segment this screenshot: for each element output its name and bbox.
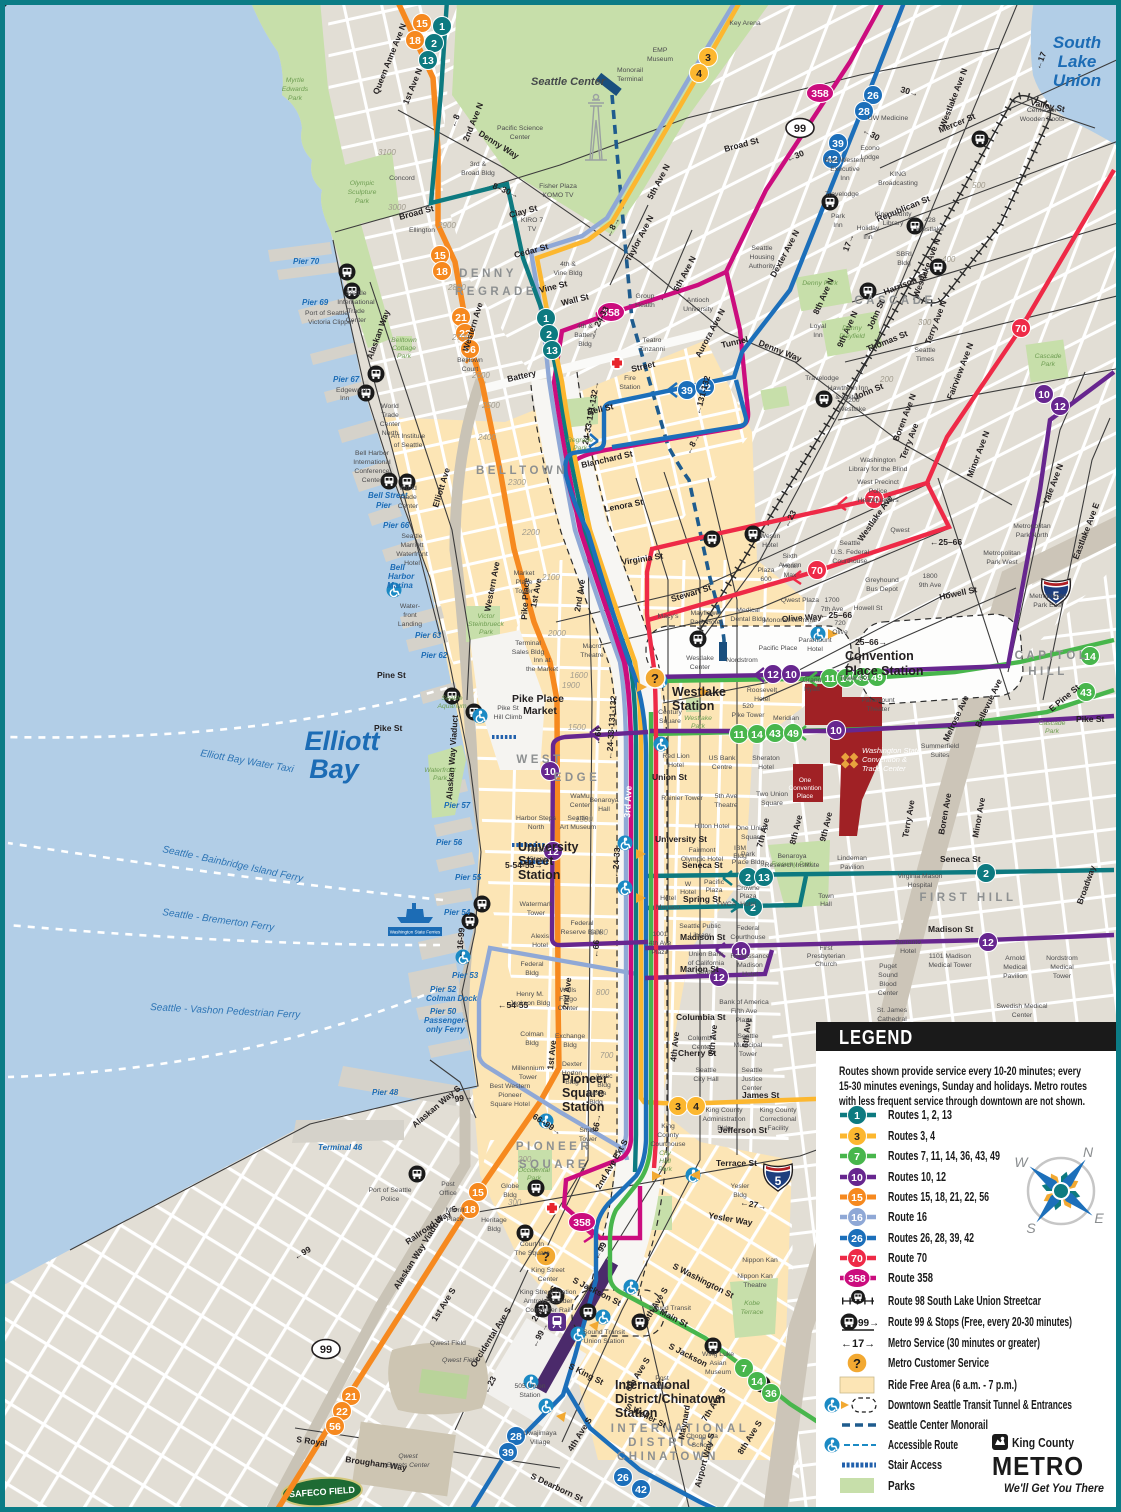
svg-text:Tower: Tower	[515, 588, 534, 595]
svg-text:Routes 10, 12: Routes 10, 12	[888, 1170, 946, 1184]
svg-text:Bldg: Bldg	[897, 260, 911, 267]
svg-text:Meridian: Meridian	[773, 715, 799, 722]
svg-text:Benaroya: Benaroya	[589, 797, 618, 804]
svg-text:←17→: ←17→	[841, 1338, 875, 1350]
svg-text:Best Western: Best Western	[825, 157, 866, 164]
svg-text:Route 70: Route 70	[888, 1251, 927, 1265]
svg-text:358: 358	[811, 88, 829, 100]
svg-text:Nordstrom: Nordstrom	[726, 657, 758, 664]
svg-text:Theatre: Theatre	[580, 652, 604, 659]
svg-text:Harbor: Harbor	[528, 847, 550, 854]
svg-text:Tower: Tower	[1053, 973, 1072, 980]
svg-text:Occidental: Occidental	[518, 1167, 551, 1174]
svg-text:720: 720	[834, 620, 846, 627]
svg-text:Routes 15, 18, 21, 22, 56: Routes 15, 18, 21, 22, 56	[888, 1190, 989, 1204]
svg-text:2: 2	[546, 329, 552, 341]
svg-text:Park North: Park North	[1016, 532, 1049, 539]
svg-text:Library: Library	[690, 932, 711, 939]
svg-text:South: South	[1053, 33, 1101, 52]
svg-text:16: 16	[851, 1212, 863, 1224]
svg-text:Courthouse: Courthouse	[832, 558, 867, 565]
svg-text:2500: 2500	[481, 401, 500, 410]
svg-text:Market: Market	[523, 705, 557, 717]
svg-text:1600: 1600	[570, 671, 588, 680]
svg-text:Pier 66: Pier 66	[383, 521, 410, 530]
svg-text:Metropolitan: Metropolitan	[983, 550, 1021, 557]
svg-text:S: S	[1026, 1220, 1036, 1236]
svg-text:Police: Police	[381, 1196, 400, 1203]
svg-text:County: County	[657, 1132, 679, 1139]
svg-text:3: 3	[675, 1101, 681, 1113]
svg-text:Seattle: Seattle	[345, 290, 366, 297]
svg-text:Park: Park	[831, 213, 846, 220]
svg-text:Hall: Hall	[598, 806, 610, 813]
svg-text:Seattle: Seattle	[441, 695, 462, 702]
svg-text:Amtrak/Sounder: Amtrak/Sounder	[523, 1298, 573, 1305]
svg-text:2400: 2400	[477, 433, 496, 442]
svg-text:Hotel: Hotel	[762, 542, 778, 549]
svg-text:Madison St: Madison St	[928, 924, 974, 934]
svg-text:Station: Station	[519, 1392, 540, 1399]
svg-text:Group: Group	[636, 293, 655, 300]
svg-text:Fargo: Fargo	[559, 996, 577, 1003]
svg-text:Park: Park	[691, 723, 706, 730]
svg-text:Rainier Tower: Rainier Tower	[661, 795, 703, 802]
svg-text:CASCADE: CASCADE	[854, 295, 935, 307]
svg-text:Federal: Federal	[736, 925, 760, 932]
svg-text:Seattle: Seattle	[741, 1067, 762, 1074]
svg-text:1: 1	[543, 313, 549, 325]
svg-text:Marriott: Marriott	[400, 542, 423, 549]
svg-text:14: 14	[751, 1376, 763, 1388]
svg-text:CAPITOL: CAPITOL	[1015, 650, 1090, 662]
svg-text:3: 3	[854, 1131, 860, 1143]
svg-text:70: 70	[851, 1253, 863, 1265]
svg-text:Authority: Authority	[749, 263, 776, 270]
svg-text:Sheraton: Sheraton	[752, 755, 780, 762]
svg-text:Cathedral: Cathedral	[877, 1016, 907, 1023]
svg-text:Inn: Inn	[340, 395, 350, 402]
svg-text:Exchange: Exchange	[555, 1033, 585, 1040]
svg-text:Square: Square	[761, 800, 783, 807]
svg-text:500: 500	[972, 181, 986, 190]
svg-text:Paramount: Paramount	[798, 637, 831, 644]
svg-text:Terrace St: Terrace St	[716, 1158, 757, 1168]
svg-text:Route 98 South Lake Union Stre: Route 98 South Lake Union Streetcar	[888, 1294, 1041, 1308]
svg-text:Port of Seattle: Port of Seattle	[368, 1187, 411, 1194]
svg-text:13: 13	[758, 872, 770, 884]
svg-text:HILL: HILL	[1028, 666, 1068, 678]
svg-text:Wooden Boots: Wooden Boots	[1020, 116, 1065, 123]
svg-text:Market: Market	[514, 570, 535, 577]
svg-text:26: 26	[851, 1233, 863, 1245]
svg-text:Bank of America: Bank of America	[719, 999, 769, 1006]
svg-text:Benaroya: Benaroya	[777, 853, 806, 860]
svg-text:Horton: Horton	[562, 1070, 583, 1077]
svg-text:Pioneer: Pioneer	[498, 1092, 522, 1099]
svg-text:Courthouse: Courthouse	[650, 1141, 685, 1148]
svg-text:15: 15	[472, 1187, 484, 1199]
svg-text:1800: 1800	[922, 573, 937, 580]
svg-text:18: 18	[464, 1204, 476, 1216]
svg-text:Convention: Convention	[845, 649, 914, 663]
svg-text:Courthouse: Courthouse	[730, 934, 765, 941]
svg-text:Millennium: Millennium	[512, 1065, 545, 1072]
svg-text:front: front	[403, 612, 417, 619]
svg-text:7: 7	[741, 1363, 747, 1375]
svg-text:Post: Post	[441, 1181, 455, 1188]
svg-text:International: International	[353, 459, 391, 466]
svg-text:Henry M.: Henry M.	[516, 991, 544, 998]
svg-text:Sculpture: Sculpture	[348, 189, 377, 196]
svg-text:Research Institute: Research Institute	[765, 862, 820, 869]
svg-text:TV: TV	[528, 226, 537, 233]
svg-text:9th Ave: 9th Ave	[919, 582, 942, 589]
svg-text:15-30 minutes evenings, Sunday: 15-30 minutes evenings, Sunday and holid…	[839, 1079, 1087, 1093]
svg-text:Wing Luke: Wing Luke	[702, 1351, 734, 1358]
svg-text:Columbia St: Columbia St	[676, 1012, 726, 1022]
svg-text:Broad Bldg: Broad Bldg	[461, 170, 495, 177]
svg-text:Aquarium: Aquarium	[436, 703, 466, 710]
svg-text:Park: Park	[573, 445, 588, 452]
svg-text:Housing: Housing	[750, 254, 775, 261]
svg-text:Police: Police	[869, 488, 888, 495]
svg-text:600: 600	[760, 576, 772, 583]
svg-text:SBRI: SBRI	[896, 251, 912, 258]
svg-text:Key Arena: Key Arena	[729, 20, 761, 27]
svg-text:Hotel: Hotel	[900, 948, 916, 955]
svg-text:Park East: Park East	[1033, 602, 1063, 609]
svg-text:Theatre: Theatre	[714, 802, 738, 809]
svg-text:Park: Park	[527, 1175, 542, 1182]
svg-text:Bldg: Bldg	[525, 1040, 539, 1047]
svg-text:Crowne: Crowne	[736, 885, 760, 892]
svg-text:Olympic: Olympic	[350, 180, 375, 187]
svg-text:1: 1	[439, 21, 445, 33]
svg-text:4: 4	[693, 1101, 699, 1113]
svg-text:Center: Center	[690, 664, 711, 671]
svg-text:Medical: Medical	[736, 607, 760, 614]
svg-text:Office: Office	[439, 1190, 457, 1197]
svg-text:1900: 1900	[562, 681, 580, 690]
svg-text:2: 2	[983, 868, 989, 880]
svg-text:Sound Transit: Sound Transit	[583, 1329, 625, 1336]
svg-text:Asian: Asian	[709, 1360, 726, 1367]
svg-text:18: 18	[436, 266, 448, 278]
svg-text:Sixth: Sixth	[782, 553, 797, 560]
svg-text:1001: 1001	[652, 931, 667, 938]
svg-text:Broadcasting: Broadcasting	[878, 180, 918, 187]
svg-text:Olympic Hotel: Olympic Hotel	[681, 856, 724, 863]
svg-text:Dental Bldg: Dental Bldg	[730, 616, 765, 623]
svg-text:Seattle: Seattle	[839, 540, 860, 547]
svg-text:Arctic: Arctic	[596, 1073, 614, 1080]
svg-text:Inn: Inn	[833, 222, 843, 229]
svg-text:Bus Depot: Bus Depot	[866, 586, 898, 593]
svg-text:Edgewater: Edgewater	[336, 387, 369, 394]
svg-text:2800: 2800	[447, 283, 466, 292]
svg-text:METRO: METRO	[992, 1451, 1084, 1481]
svg-text:Park: Park	[397, 353, 412, 360]
svg-text:358: 358	[848, 1273, 866, 1285]
svg-text:Terminal: Terminal	[515, 640, 541, 647]
svg-text:Medical: Medical	[1050, 964, 1074, 971]
svg-text:Bldg: Bldg	[578, 341, 592, 348]
svg-text:US Bank: US Bank	[709, 755, 736, 762]
svg-text:Nippon Kan: Nippon Kan	[742, 1257, 778, 1264]
svg-text:2000: 2000	[547, 629, 566, 638]
svg-text:Olive: Olive	[832, 629, 848, 636]
svg-text:Terminal 46: Terminal 46	[318, 1143, 363, 1152]
svg-text:First: First	[819, 945, 832, 952]
svg-text:Vine Bldg: Vine Bldg	[554, 270, 583, 277]
svg-text:Edwards: Edwards	[282, 86, 309, 93]
svg-text:26: 26	[617, 1472, 629, 1484]
svg-text:Square: Square	[741, 834, 763, 841]
svg-text:Sorrento: Sorrento	[895, 939, 921, 946]
svg-text:Chong Wa: Chong Wa	[686, 1433, 718, 1440]
svg-text:U.S. Federal: U.S. Federal	[831, 549, 870, 556]
svg-text:LEGEND: LEGEND	[839, 1027, 913, 1049]
svg-text:Hilton Hotel: Hilton Hotel	[694, 823, 730, 830]
svg-text:Hyatt: Hyatt	[804, 686, 820, 693]
svg-text:Pier 62: Pier 62	[421, 651, 448, 660]
svg-text:Pike Place: Pike Place	[512, 693, 564, 705]
svg-text:520: 520	[742, 703, 754, 710]
svg-text:Nippon Kan: Nippon Kan	[737, 1273, 773, 1280]
svg-text:Federal: Federal	[570, 920, 594, 927]
svg-text:Plaza: Plaza	[651, 949, 668, 956]
svg-text:Colman Dock: Colman Dock	[426, 994, 478, 1003]
svg-text:Seattle: Seattle	[914, 347, 935, 354]
svg-text:200: 200	[879, 375, 894, 384]
svg-text:King County: King County	[874, 211, 912, 218]
svg-text:Columbia: Columbia	[688, 1035, 717, 1042]
svg-text:N: N	[1083, 1144, 1094, 1160]
svg-text:Library for the Blind: Library for the Blind	[849, 466, 908, 473]
svg-text:Metro Service (30 minutes or g: Metro Service (30 minutes or greater)	[888, 1336, 1040, 1350]
svg-text:Summerfield: Summerfield	[921, 743, 959, 750]
svg-text:KOMO TV: KOMO TV	[542, 192, 574, 199]
svg-text:2100: 2100	[541, 573, 560, 582]
svg-text:5: 5	[775, 1174, 782, 1188]
svg-text:Bldg: Bldg	[487, 1226, 501, 1233]
svg-text:Roosevelt: Roosevelt	[747, 687, 777, 694]
svg-text:Econo: Econo	[860, 145, 879, 152]
svg-text:Routes 3, 4: Routes 3, 4	[888, 1129, 935, 1143]
svg-text:Fifth Ave: Fifth Ave	[731, 1008, 758, 1015]
svg-text:W: W	[1014, 1154, 1029, 1170]
svg-text:Fire: Fire	[624, 375, 636, 382]
svg-text:Park: Park	[288, 95, 303, 102]
svg-text:Marina: Marina	[387, 581, 413, 590]
svg-text:Court: Court	[462, 366, 479, 373]
svg-text:39: 39	[502, 1447, 514, 1459]
svg-text:Pavilion: Pavilion	[1003, 973, 1027, 980]
svg-text:Arnold: Arnold	[1005, 955, 1025, 962]
svg-text:Paramount: Paramount	[861, 697, 894, 704]
svg-text:Center: Center	[346, 317, 367, 324]
svg-text:Court In: Court In	[520, 1241, 544, 1248]
svg-text:Tower: Tower	[579, 1136, 598, 1143]
svg-text:Pike St: Pike St	[1076, 714, 1105, 724]
svg-text:Administration: Administration	[702, 1116, 745, 1123]
svg-text:Plaza: Plaza	[757, 567, 774, 574]
svg-text:Medical: Medical	[1003, 964, 1027, 971]
svg-text:Center: Center	[1012, 1012, 1033, 1019]
svg-text:Route 358: Route 358	[888, 1271, 933, 1285]
svg-text:43: 43	[1080, 687, 1092, 699]
svg-text:400: 400	[942, 255, 956, 264]
svg-text:Westlake: Westlake	[838, 406, 866, 413]
svg-text:300: 300	[918, 318, 932, 327]
svg-text:Ride Free Area (6 a.m. - 7 p.m: Ride Free Area (6 a.m. - 7 p.m.)	[888, 1378, 1017, 1392]
svg-text:Pier 56: Pier 56	[436, 838, 463, 847]
svg-text:Myrtle: Myrtle	[286, 77, 305, 84]
svg-text:?: ?	[651, 671, 659, 686]
svg-text:Square: Square	[659, 718, 681, 725]
svg-text:Fairmont: Fairmont	[689, 847, 716, 854]
svg-text:Union Bank: Union Bank	[688, 951, 724, 958]
svg-text:One Union: One Union	[736, 825, 769, 832]
svg-text:Seattle Public: Seattle Public	[679, 923, 721, 930]
svg-text:13: 13	[422, 55, 434, 67]
svg-text:Seattle: Seattle	[751, 245, 772, 252]
svg-text:Bldg: Bldg	[733, 1192, 747, 1199]
svg-text:Bay: Bay	[309, 754, 361, 784]
svg-text:Seattle: Seattle	[737, 1033, 758, 1040]
svg-text:15: 15	[416, 18, 428, 30]
svg-text:Pier 63: Pier 63	[415, 631, 442, 640]
svg-text:World: World	[399, 485, 417, 492]
svg-text:2700: 2700	[451, 333, 470, 342]
svg-text:Medical Tower: Medical Tower	[928, 962, 972, 969]
svg-text:Renaissance: Renaissance	[730, 953, 770, 960]
svg-text:Trade: Trade	[399, 494, 417, 501]
svg-text:Park: Park	[433, 775, 448, 782]
svg-text:DENNY: DENNY	[459, 268, 517, 280]
svg-text:Water-: Water-	[400, 603, 420, 610]
svg-text:Bldg: Bldg	[717, 1125, 731, 1132]
svg-text:University St: University St	[655, 834, 707, 844]
svg-text:only Ferry: only Ferry	[426, 1025, 465, 1034]
svg-text:Smith: Smith	[579, 1127, 597, 1134]
svg-text:Howell St: Howell St	[854, 605, 883, 612]
svg-text:Yesler: Yesler	[731, 1183, 750, 1190]
svg-text:99: 99	[320, 1344, 332, 1356]
svg-text:?: ?	[853, 1356, 861, 1371]
svg-text:Tower: Tower	[527, 910, 546, 917]
svg-text:North: North	[528, 824, 545, 831]
svg-text:Grand: Grand	[803, 677, 822, 684]
svg-text:Route 99 & Stops (Free, every: Route 99 & Stops (Free, every 20-30 minu…	[888, 1315, 1072, 1329]
svg-text:Seattle: Seattle	[401, 533, 422, 540]
svg-text:Regrade: Regrade	[567, 437, 593, 444]
svg-text:Pavilion: Pavilion	[840, 864, 864, 871]
svg-text:Place: Place	[515, 579, 532, 586]
svg-text:Accessible Route: Accessible Route	[888, 1438, 958, 1452]
svg-text:Pacific: Pacific	[704, 879, 725, 886]
svg-text:Westlake: Westlake	[684, 715, 712, 722]
svg-text:Ellington: Ellington	[409, 227, 435, 234]
svg-text:Loyal: Loyal	[810, 323, 827, 330]
svg-text:Jackson Bldg: Jackson Bldg	[510, 1000, 551, 1007]
svg-text:Terminal: Terminal	[617, 76, 643, 83]
svg-text:Alaska: Alaska	[586, 1090, 607, 1097]
svg-text:Colman: Colman	[520, 1031, 544, 1038]
svg-text:300: 300	[508, 1198, 522, 1207]
svg-text:10: 10	[1038, 389, 1050, 401]
svg-text:Inn: Inn	[813, 332, 823, 339]
svg-text:Conference: Conference	[354, 468, 389, 475]
svg-text:Port of Seattle: Port of Seattle	[305, 310, 348, 317]
svg-text:Route 16: Route 16	[888, 1210, 927, 1224]
svg-text:Place Bldg: Place Bldg	[732, 859, 765, 866]
svg-text:Center: Center	[380, 421, 401, 428]
svg-text:Waterfront: Waterfront	[396, 551, 428, 558]
svg-text:KING: KING	[890, 171, 907, 178]
svg-text:←66: ←66	[592, 726, 603, 745]
svg-text:Routes 7, 11, 14, 36, 43, 49: Routes 7, 11, 14, 36, 43, 49	[888, 1149, 1000, 1163]
svg-text:4: 4	[696, 68, 702, 80]
svg-text:Pacific Place: Pacific Place	[759, 645, 798, 652]
svg-text:43: 43	[769, 728, 781, 740]
svg-text:70: 70	[811, 565, 823, 577]
svg-text:1101 Madison: 1101 Madison	[929, 953, 971, 960]
svg-text:Center: Center	[692, 1044, 713, 1051]
svg-text:14: 14	[751, 729, 763, 741]
svg-text:Routes 1, 2, 13: Routes 1, 2, 13	[888, 1108, 952, 1122]
svg-text:Center for: Center for	[1027, 107, 1058, 114]
svg-text:Hotel: Hotel	[740, 901, 756, 908]
svg-text:Seneca St: Seneca St	[940, 854, 981, 864]
svg-text:Mayflower: Mayflower	[691, 610, 723, 617]
svg-text:Denny Park: Denny Park	[802, 280, 838, 287]
svg-text:15: 15	[851, 1192, 863, 1204]
svg-text:Pike St: Pike St	[374, 723, 403, 733]
svg-text:Virginia Mason: Virginia Mason	[898, 873, 943, 880]
svg-text:Qwest: Qwest	[890, 527, 909, 534]
svg-text:Health: Health	[635, 302, 655, 309]
svg-text:BELLTOWN: BELLTOWN	[476, 465, 568, 477]
svg-text:King Street: King Street	[531, 1267, 565, 1274]
svg-text:Belltown: Belltown	[391, 337, 417, 344]
svg-text:with less frequent service thr: with less frequent service through downt…	[838, 1094, 1085, 1108]
svg-text:Plaza: Plaza	[735, 1017, 752, 1024]
svg-text:Art Museum: Art Museum	[560, 824, 597, 831]
svg-text:Washington State Ferries: Washington State Ferries	[390, 930, 441, 935]
svg-text:Museum: Museum	[647, 56, 673, 63]
svg-text:Center: Center	[878, 990, 899, 997]
svg-text:42: 42	[635, 1484, 647, 1496]
svg-text:13: 13	[546, 345, 558, 357]
svg-text:Belltown: Belltown	[457, 357, 483, 364]
svg-text:Steps: Steps	[529, 856, 547, 863]
svg-text:Headquarters: Headquarters	[857, 497, 899, 504]
svg-text:Hospital: Hospital	[908, 882, 933, 889]
svg-text:Center: Center	[398, 503, 419, 510]
svg-text:Park West: Park West	[986, 559, 1017, 566]
svg-text:15: 15	[434, 250, 446, 262]
svg-text:Concord: Concord	[389, 175, 415, 182]
svg-text:Pier 70: Pier 70	[293, 257, 320, 266]
svg-text:10: 10	[830, 725, 842, 737]
svg-text:Justice: Justice	[741, 1076, 762, 1083]
svg-text:Facility: Facility	[767, 1125, 789, 1132]
svg-text:Kobe: Kobe	[744, 1300, 760, 1307]
svg-text:Hawthorn Inn: Hawthorn Inn	[828, 385, 869, 392]
svg-text:Station: Station	[619, 384, 640, 391]
